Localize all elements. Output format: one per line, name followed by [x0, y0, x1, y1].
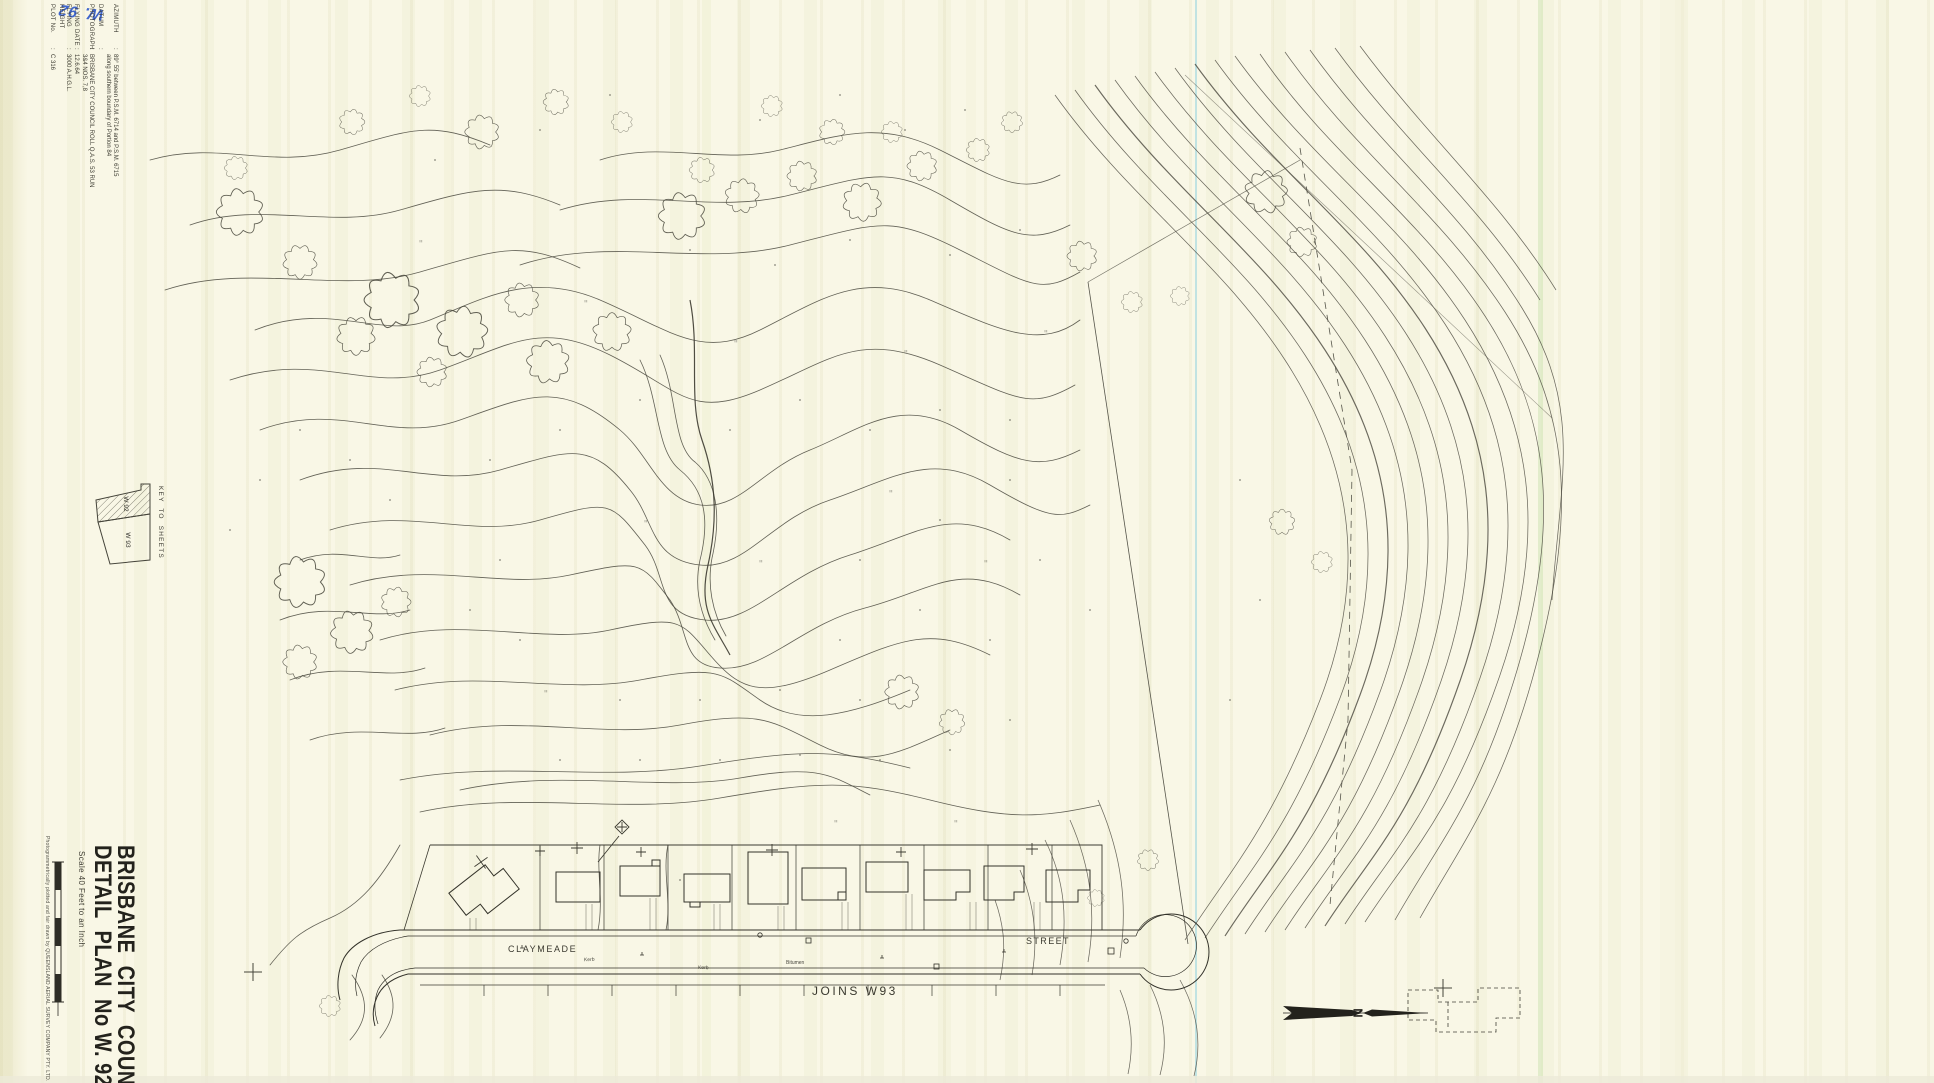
map-linework: N: [0, 0, 1934, 1083]
north-letter: N: [1351, 1008, 1366, 1017]
north-arrow-tail: [1283, 1006, 1362, 1020]
spot-height-marks: [229, 94, 1261, 881]
dashed-structure-outline: [1408, 988, 1520, 1032]
street-kerbs: [338, 914, 1209, 1026]
contour-lines-right-slope: [995, 46, 1563, 1076]
plan-sheet: W. 92 AZIMUTH:89° 55' between P.S.M. 671…: [0, 0, 1934, 1083]
kerb-label: Kerb: [698, 965, 709, 971]
creek-line: [690, 300, 730, 655]
survey-diamond-mark: [598, 820, 629, 862]
north-arrow: N: [1283, 1006, 1428, 1020]
street-name-claymeade: CLAYMEADE: [508, 944, 577, 954]
street-name-street: STREET: [1026, 936, 1070, 946]
building-outlines: [449, 852, 1090, 925]
kerb-label: Kerb: [584, 957, 595, 964]
vegetation-outlines: [216, 85, 1332, 1016]
north-arrow-head: [1363, 1010, 1428, 1017]
survey-cross-marks: [470, 842, 1038, 873]
contour-lines-central: [150, 130, 1100, 1040]
subdivision-lots: [404, 845, 1105, 996]
survey-boundary-lines: [1088, 75, 1552, 944]
joins-sheet-label: JOINS W93: [812, 984, 898, 998]
road-surface-label: Bitumen: [786, 960, 804, 966]
